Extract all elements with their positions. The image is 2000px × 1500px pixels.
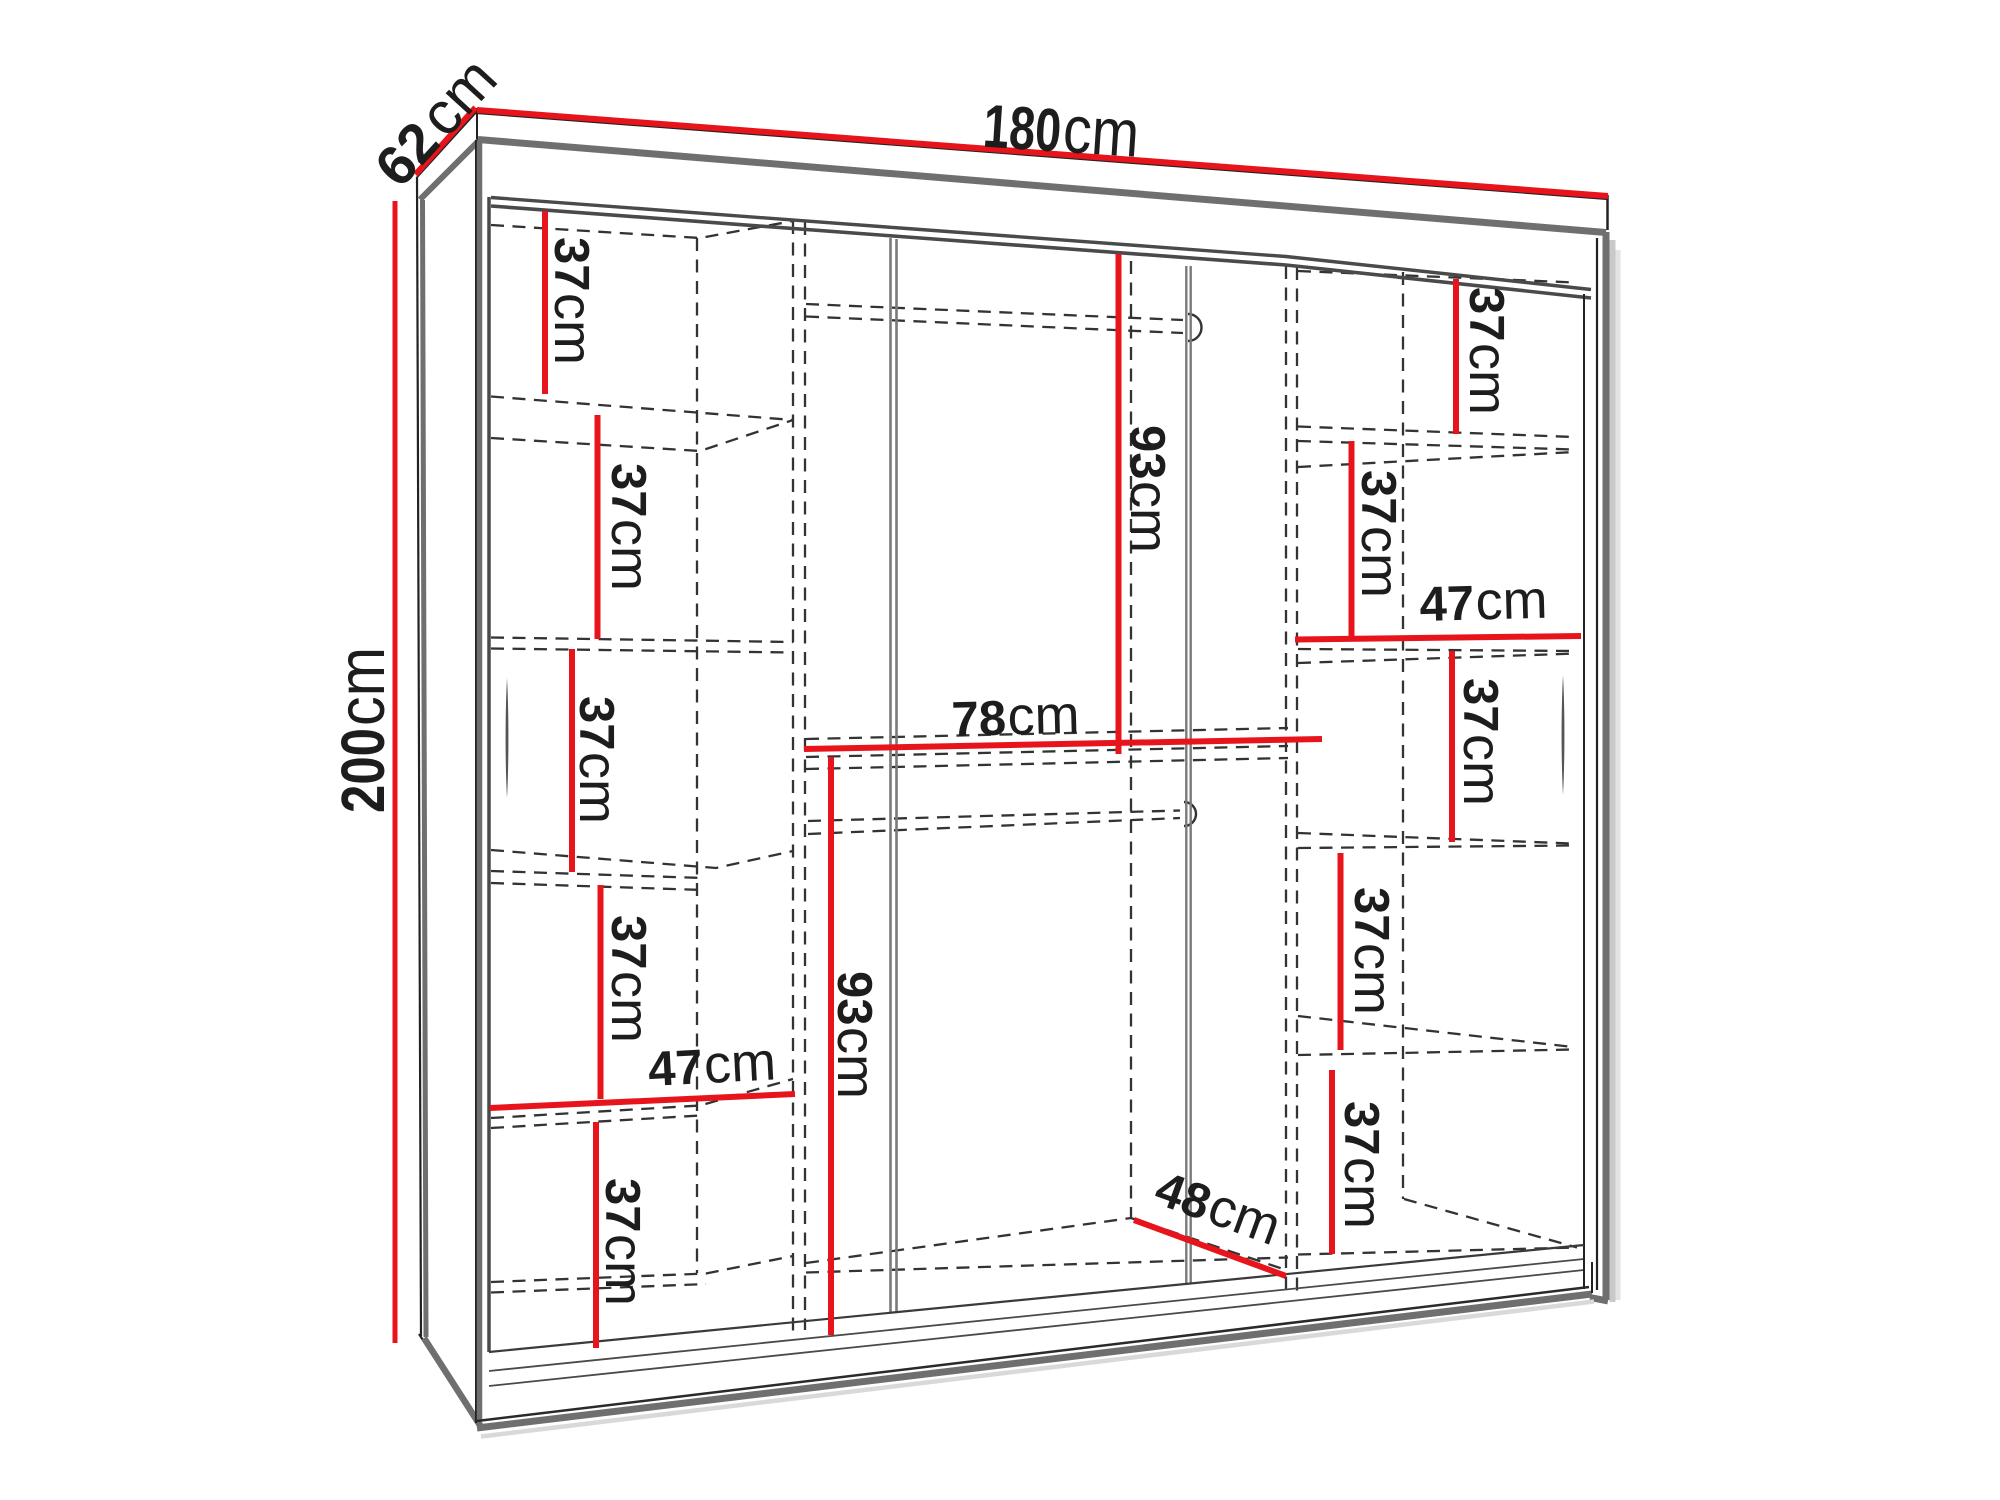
svg-text:cm: cm [600,971,660,1043]
svg-text:cm: cm [1452,734,1512,806]
svg-text:cm: cm [1350,526,1410,598]
svg-text:cm: cm [600,519,660,591]
svg-text:cm: cm [1007,685,1081,747]
svg-text:78: 78 [951,692,1007,747]
svg-text:37: 37 [595,1178,649,1233]
svg-text:cm: cm [543,293,603,365]
svg-text:47: 47 [1419,577,1475,632]
svg-text:37: 37 [1453,678,1507,733]
svg-text:cm: cm [1119,481,1179,553]
svg-text:cm: cm [324,647,399,726]
svg-text:cm: cm [1475,570,1549,632]
svg-text:37: 37 [601,463,655,518]
svg-text:37: 37 [544,237,598,292]
svg-text:cm: cm [1343,943,1403,1015]
svg-text:37: 37 [1334,1101,1388,1156]
svg-text:37: 37 [1344,887,1398,942]
svg-text:cm: cm [702,1031,777,1095]
svg-text:37: 37 [1459,287,1513,342]
svg-text:cm: cm [1458,343,1518,415]
svg-text:cm: cm [1061,92,1142,172]
svg-text:180: 180 [981,92,1063,165]
svg-text:37: 37 [569,696,623,751]
svg-text:37: 37 [1351,470,1405,525]
svg-text:cm: cm [826,1027,886,1099]
svg-text:93: 93 [1120,425,1174,480]
svg-text:93: 93 [827,971,881,1026]
svg-text:cm: cm [568,752,628,824]
svg-text:cm: cm [594,1234,654,1306]
svg-text:47: 47 [647,1040,704,1097]
svg-text:cm: cm [1333,1157,1393,1229]
svg-text:200: 200 [329,728,397,813]
svg-text:37: 37 [601,915,655,970]
